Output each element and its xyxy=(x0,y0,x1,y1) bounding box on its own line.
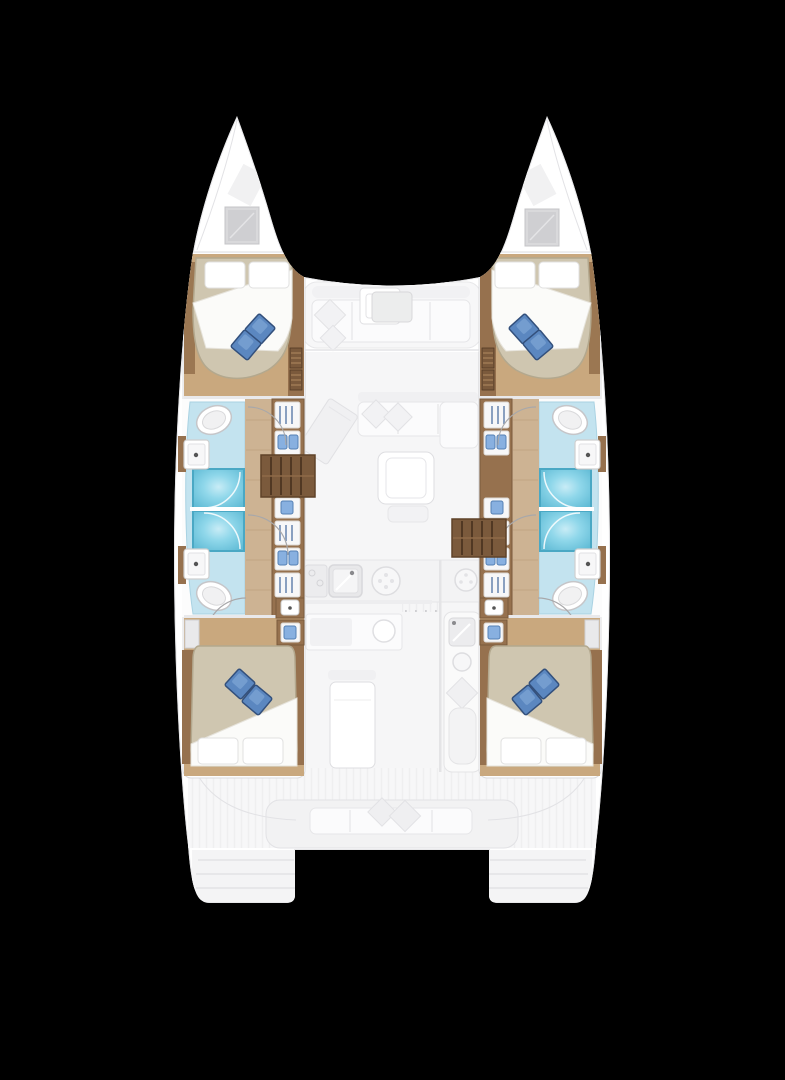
cockpit-table xyxy=(330,682,375,768)
companionway-steps xyxy=(452,519,506,557)
counter-edge xyxy=(302,600,432,604)
saloon-bench xyxy=(388,506,428,522)
stove-burner xyxy=(372,567,400,595)
sofa-chaise xyxy=(440,402,478,448)
cockpit-counter-inset xyxy=(310,618,352,646)
starboard-transom xyxy=(489,850,592,902)
cockpit-bench-back xyxy=(328,670,376,680)
cockpit-wall-line xyxy=(439,560,442,772)
port-deck-hatch xyxy=(225,207,259,244)
galley-appliance xyxy=(305,565,327,597)
cockpit-sink xyxy=(373,620,395,642)
foredeck-locker-hatch xyxy=(372,292,412,322)
bar-unit xyxy=(444,612,481,772)
catamaran-floorplan xyxy=(0,0,785,1080)
stove-burner xyxy=(455,569,477,591)
floorplan-canvas xyxy=(0,0,785,1080)
bar-seat xyxy=(449,708,476,764)
starboard-deck-hatch xyxy=(525,209,559,246)
companionway-steps xyxy=(261,455,315,497)
boat xyxy=(174,116,610,903)
aft-bench xyxy=(266,798,518,848)
port-hull xyxy=(178,252,315,778)
galley-sink xyxy=(329,565,362,597)
bar-burner xyxy=(453,653,471,671)
port-transom xyxy=(192,850,295,902)
